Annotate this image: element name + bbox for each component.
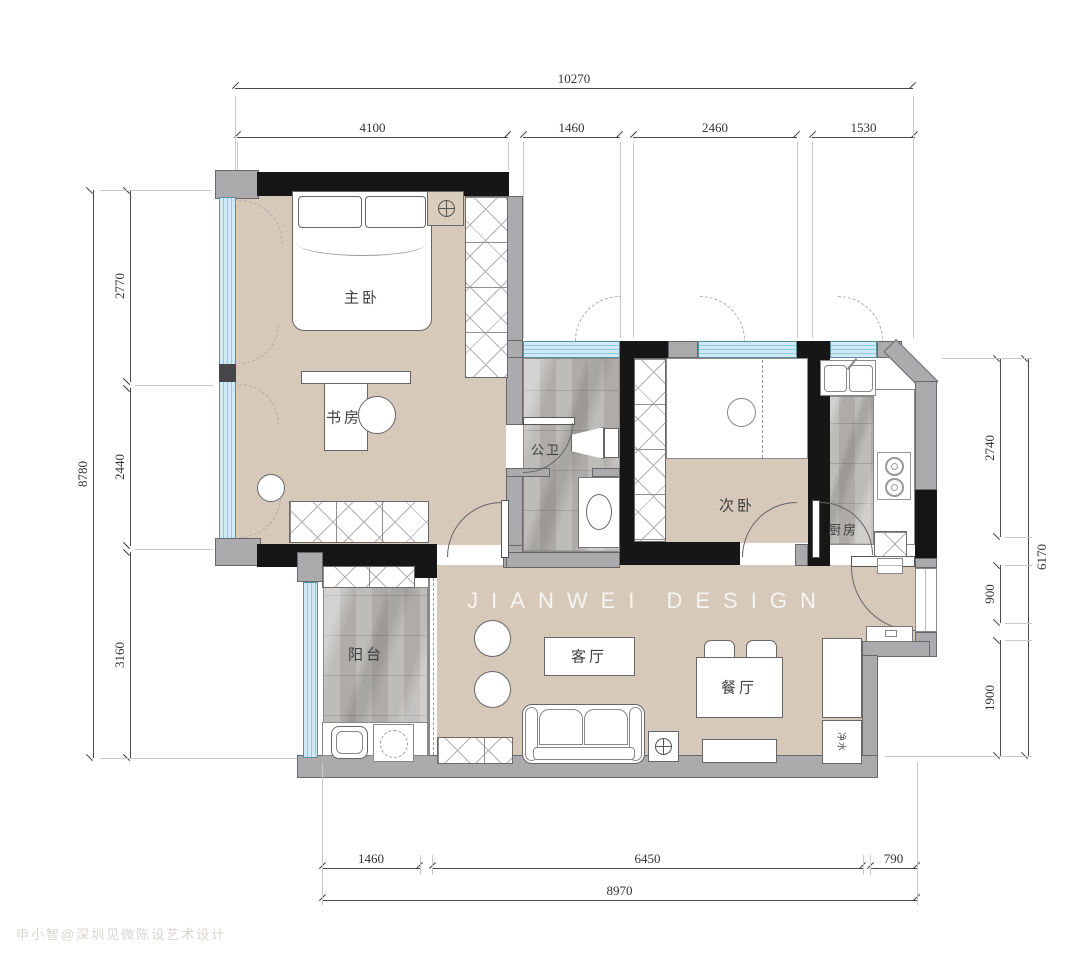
dimension-left-total: 8780 [93, 190, 94, 758]
extension-line [863, 855, 864, 875]
dimension-top-seg-4: 1530 [812, 137, 915, 138]
wall-kitchen-right [915, 381, 937, 490]
kitchen-pass-window [877, 558, 903, 574]
wall-second-bottom [620, 542, 740, 565]
extension-line [917, 762, 918, 905]
dimension-right-seg-1: 2740 [1000, 358, 1001, 537]
dimension-right-seg-2: 900 [1000, 565, 1001, 623]
label-water-cabinet: 净水 [836, 732, 849, 752]
study-low-cabinet [289, 501, 429, 543]
extension-line [1005, 640, 1032, 641]
wall-study-bottom [257, 544, 437, 567]
extension-line [885, 756, 1032, 757]
wall-bathroom-bottom [506, 552, 620, 568]
dimension-bottom-seg-3: 790 [870, 868, 917, 869]
extension-line [870, 855, 871, 875]
second-bed-divider [762, 360, 763, 458]
living-low-cabinet [437, 737, 513, 764]
wall-kitchen-right-black [915, 490, 937, 558]
floor-lamp-icon [655, 738, 672, 755]
casement-arc-kitchen-window [838, 296, 883, 341]
dimension-top-seg-1: 4100 [237, 137, 508, 138]
dimension-left-seg-2: 2440 [130, 388, 131, 546]
wall-bath-second-divider-top [620, 341, 668, 358]
dining-sideboard [702, 739, 777, 763]
extension-line [523, 142, 524, 338]
second-bedroom-wardrobe [634, 358, 666, 542]
kitchen-sink-counter [820, 360, 876, 396]
study-desk-top [301, 371, 411, 384]
stove-burner-bottom [885, 478, 904, 497]
extension-line [237, 142, 238, 170]
washing-machine-drum-icon [380, 730, 408, 758]
entry-bench-detail [885, 630, 897, 637]
sofa-cushion-right [584, 709, 628, 745]
wall-second-top-pillar [668, 341, 698, 358]
extension-line [620, 142, 621, 338]
extension-line [100, 190, 212, 191]
sofa [522, 704, 645, 764]
window-second-bedroom [698, 341, 797, 358]
bed-pillow-left [298, 196, 362, 228]
bathroom-sink [586, 494, 612, 530]
entry-bench [866, 626, 913, 642]
study-stool [257, 474, 285, 502]
wall-bathroom-top-corner [506, 340, 523, 358]
kitchen-sink-basin-right [849, 365, 873, 392]
wall-corner-study-bottom-left [215, 538, 261, 566]
extension-line [508, 142, 509, 170]
sofa-cushion-left [539, 709, 583, 745]
wall-balcony-top-black [412, 556, 437, 578]
kitchen-low-cabinet [874, 531, 907, 557]
extension-line [235, 96, 236, 170]
dimension-bottom-seg-1: 1460 [322, 868, 420, 869]
brand-watermark: JIANWEI DESIGN [467, 588, 829, 614]
wall-corner-top-left [215, 170, 259, 199]
wall-entry-top-stub [915, 558, 937, 568]
label-bathroom: 公卫 [531, 440, 561, 459]
study-chair [358, 396, 396, 434]
label-living-room: 客厅 [571, 646, 607, 667]
floor-plan-canvas: 主卧 书房 公卫 次卧 厨房 阳台 客厅 餐厅 净水 JIANWEI DESIG… [0, 0, 1080, 965]
dimension-top-total: 10270 [235, 88, 913, 89]
extension-line [1005, 537, 1032, 538]
wall-dining-right [862, 655, 878, 760]
living-pouf-top [474, 620, 511, 657]
extension-line [633, 142, 634, 338]
extension-line [812, 142, 813, 338]
extension-line [135, 549, 213, 550]
dimension-right-seg-3: 1900 [1000, 640, 1001, 756]
second-bedroom-stool [727, 398, 756, 427]
ceiling-fixture-icon [438, 200, 455, 217]
credit-watermark: 申小智@深圳见微陈设艺术设计 [16, 924, 226, 943]
label-kitchen: 厨房 [828, 520, 858, 539]
label-second-bedroom: 次卧 [719, 495, 755, 516]
entry-doorway [915, 568, 937, 632]
balcony-glass-line-1 [428, 578, 430, 755]
dimension-right-total: 6170 [1028, 358, 1029, 756]
balcony-glass-line-2 [433, 578, 436, 755]
bed-blanket-curve [297, 230, 427, 256]
extension-line [420, 855, 421, 875]
extension-line [100, 758, 297, 759]
extension-line [135, 385, 213, 386]
dimension-top-seg-3: 2460 [633, 137, 797, 138]
extension-line [322, 762, 323, 905]
dimension-top-seg-2: 1460 [523, 137, 620, 138]
kitchen-stove [877, 452, 911, 500]
wall-bath-second-divider [620, 358, 634, 552]
casement-arc-second-window [700, 296, 745, 341]
washing-machine [373, 724, 414, 762]
dimension-bottom-total: 8970 [322, 900, 917, 901]
dimension-bottom-seg-2: 6450 [432, 868, 863, 869]
extension-line [797, 142, 798, 338]
extension-line [913, 96, 914, 338]
extension-line [1005, 565, 1032, 566]
window-kitchen [830, 341, 877, 358]
dimension-left-seg-3: 3160 [130, 552, 131, 758]
balcony-sink [331, 726, 368, 759]
kitchen-sink-basin-left [824, 365, 847, 392]
extension-line [1005, 623, 1032, 624]
wall-master-right-upper [506, 196, 523, 425]
master-wardrobe [465, 196, 508, 378]
balcony-sink-basin [336, 731, 363, 754]
window-balcony-left [303, 582, 318, 758]
extension-line [942, 358, 1032, 359]
bed-pillow-right [365, 196, 426, 228]
wall-left-mullion [219, 364, 236, 382]
casement-arc-bath-window [575, 296, 620, 341]
dimension-left-seg-1: 2770 [130, 190, 131, 382]
extension-line [432, 855, 433, 875]
master-door-leaf [501, 500, 509, 558]
label-study: 书房 [326, 407, 362, 428]
master-bed [292, 191, 432, 331]
toilet-tank [604, 428, 619, 458]
kitchen-door-leaf [812, 500, 820, 558]
wall-bathroom-partition-stub [592, 468, 620, 477]
wall-balcony-corner [297, 552, 323, 582]
label-balcony: 阳台 [348, 644, 384, 665]
wall-second-kitchen-divider-top [797, 341, 830, 358]
balcony-cabinet [322, 566, 415, 588]
label-master-bedroom: 主卧 [344, 287, 380, 308]
sofa-seat-front [533, 747, 635, 760]
window-bathroom [523, 341, 620, 358]
living-pouf-bottom [474, 671, 511, 708]
stove-burner-top [885, 457, 904, 476]
label-dining-room: 餐厅 [721, 677, 757, 698]
entry-tall-cabinet [822, 638, 862, 718]
